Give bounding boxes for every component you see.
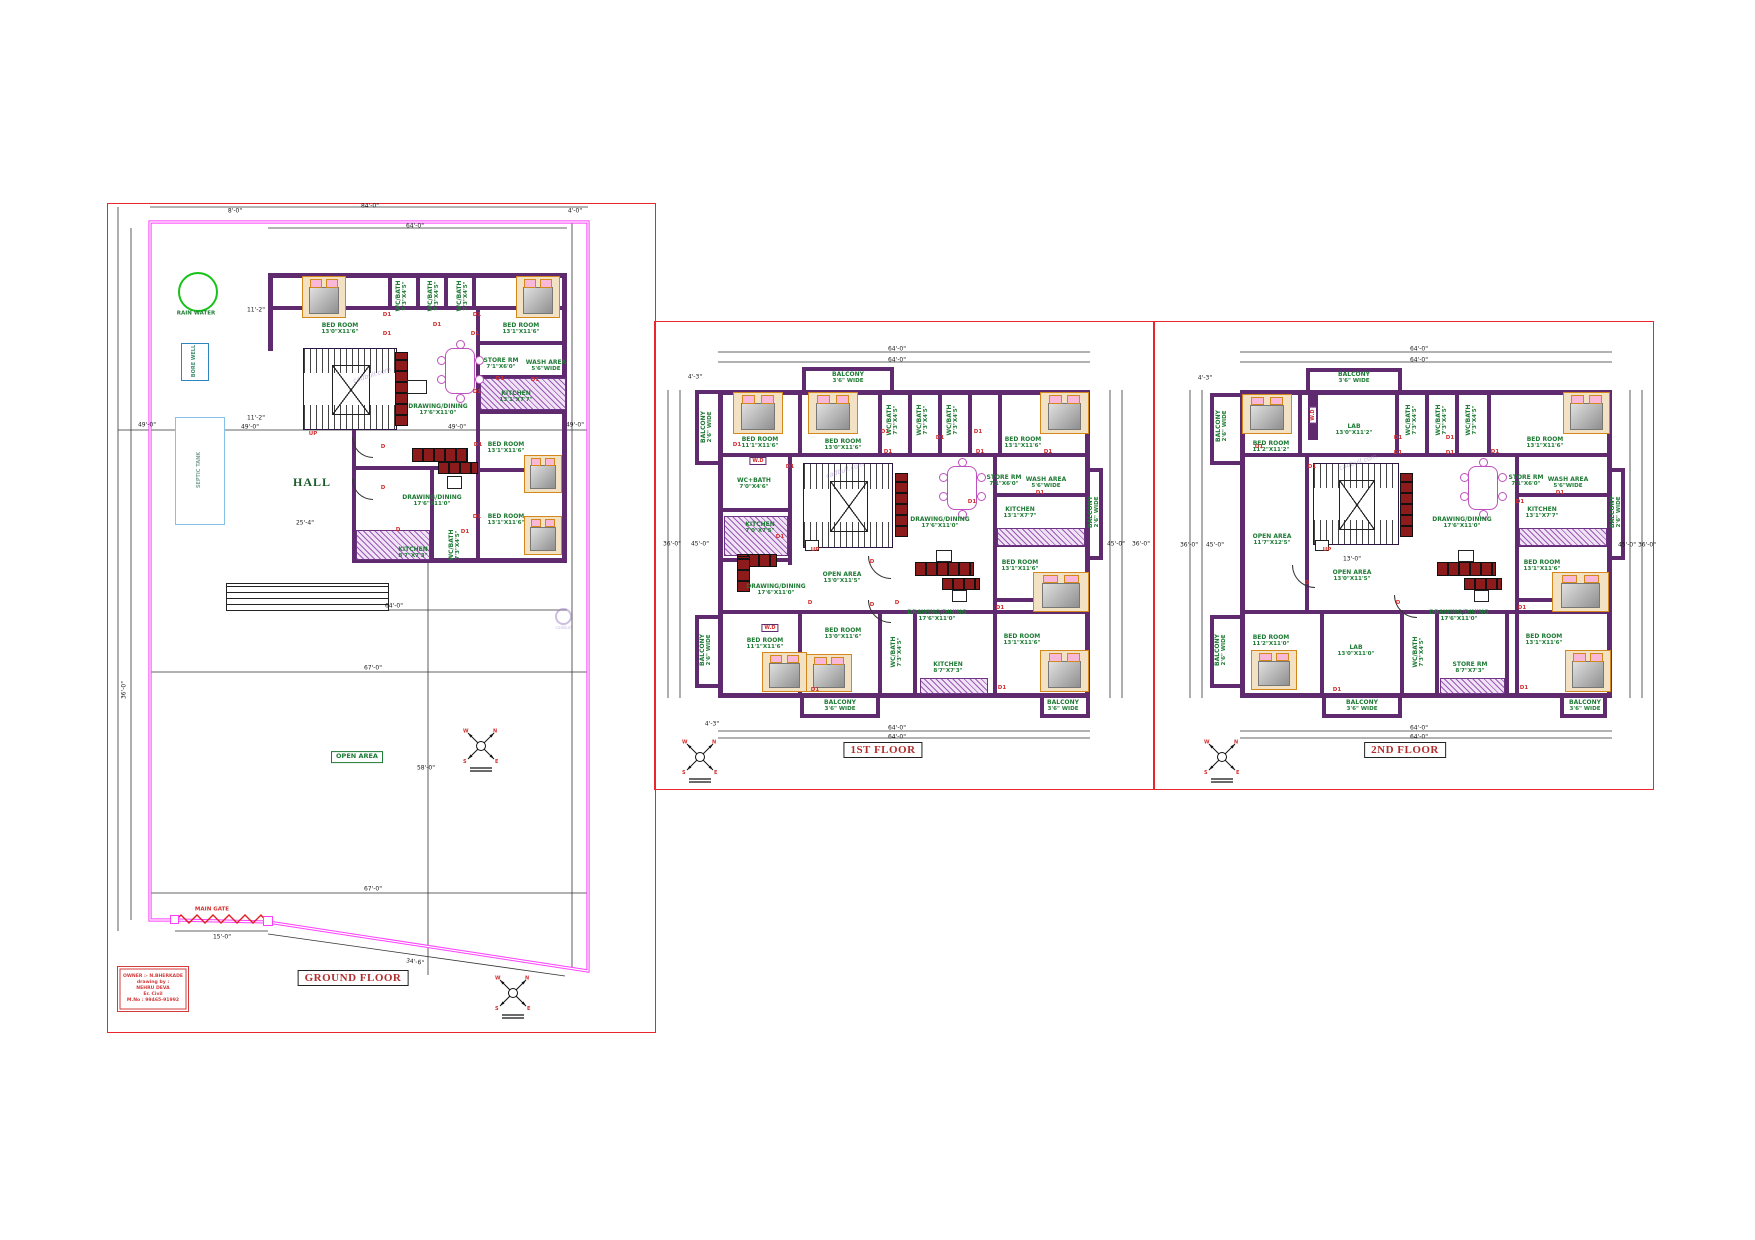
room-size: 11'7"X12'5" <box>1253 540 1292 547</box>
table-box <box>447 476 462 489</box>
bed-pillow <box>1590 653 1603 661</box>
dining-chair <box>1460 492 1469 501</box>
dimension-text: 36'-0" <box>1132 541 1150 548</box>
svg-text:W: W <box>495 976 501 982</box>
dimension-text: 25'-4" <box>296 520 314 527</box>
room-size: 3'6" WIDE <box>1569 706 1601 713</box>
wall-segment <box>695 390 718 394</box>
door-label: D1 <box>383 312 391 318</box>
room-label: WC/BATH7'3"X4'5" <box>946 404 960 435</box>
bed-furniture <box>516 276 560 318</box>
bed-pillow <box>814 657 827 665</box>
wall-segment <box>1085 556 1103 560</box>
wall-segment <box>1305 453 1309 612</box>
wall-segment <box>876 698 880 718</box>
bed-furniture <box>524 516 562 555</box>
wall-segment <box>1210 461 1240 465</box>
room-size: 7'3"X4'5" <box>923 404 930 435</box>
room-label: DRAWING/DINING17'6"X11'0" <box>408 403 467 417</box>
bed-furniture <box>1040 650 1089 692</box>
room-size: 7'3"X4'5" <box>463 280 470 311</box>
room-label: BALCONY2'6" WIDE <box>699 634 713 666</box>
bed-pillow <box>310 279 322 287</box>
wall-segment <box>1435 610 1439 698</box>
wall-segment <box>1505 610 1509 698</box>
room-size: 8'7"X7'3" <box>398 553 428 560</box>
dimension-text: 45'-0" <box>1206 542 1224 549</box>
door-label: D1 <box>1308 464 1316 470</box>
wall-segment <box>1322 714 1402 718</box>
wall-segment <box>1607 556 1625 560</box>
room-size: 13'1"X11'6" <box>1005 443 1042 450</box>
room-size: 17'6"X11'0" <box>907 616 966 623</box>
dimension-text: 36'-0" <box>121 681 128 699</box>
wall-segment <box>430 466 434 562</box>
wall-segment <box>1425 390 1429 457</box>
door-label: D <box>808 600 813 606</box>
dimension-text: 64'-0" <box>1410 734 1428 741</box>
dimension-text: 4'-3" <box>688 374 702 381</box>
dimension-text: 36'-0" <box>1180 542 1198 549</box>
room-label: STORE RM8'7"X7'3" <box>1453 661 1488 675</box>
bed-pillow <box>742 395 756 403</box>
door-label: D1 <box>998 685 1006 691</box>
room-size: 2'6" WIDE <box>1221 634 1228 666</box>
room-size: 7'3"X4'5" <box>893 404 900 435</box>
stairs-block <box>803 463 893 548</box>
door-label: D <box>870 602 875 608</box>
room-size: 13'0"X11'6" <box>825 445 862 452</box>
utility-label: BORE WELL <box>191 345 197 377</box>
north-compass-icon: N E S W <box>682 739 718 789</box>
room-label: BED ROOM13'1"X11'6" <box>1002 559 1039 573</box>
wall-segment <box>1086 698 1090 718</box>
room-label: WC/BATH7'3"X4'5" <box>916 404 930 435</box>
room-label: WASH AREA5'6"WIDE <box>526 359 566 373</box>
wall-segment <box>1210 393 1214 465</box>
room-label: OPEN AREA11'7"X12'5" <box>1253 533 1292 547</box>
dining-chair <box>939 492 948 501</box>
room-label: WC+BATH7'0"X4'6" <box>737 477 771 491</box>
stair-landing-cross <box>830 481 867 533</box>
bed-pillow <box>545 458 556 466</box>
door-label: D1 <box>811 687 819 693</box>
room-label: LAB13'0"X11'0" <box>1338 644 1375 658</box>
room-label: KITCHEN13'1"X7'7" <box>1003 506 1036 520</box>
room-size: 13'1"X11'6" <box>503 329 540 336</box>
bed-pillow <box>836 395 850 403</box>
north-compass-icon: N E S W <box>495 975 531 1021</box>
room-size: 2'6" WIDE <box>1222 410 1229 442</box>
north-compass-icon: N E S W <box>1204 739 1240 789</box>
wall-segment <box>1398 698 1402 718</box>
room-label: BED ROOM13'0"X11'6" <box>825 438 862 452</box>
bed-mattress <box>309 287 339 313</box>
bed-furniture <box>1040 392 1089 434</box>
bed-pillow <box>1251 397 1265 405</box>
wall-segment <box>718 508 792 512</box>
door-label: D1 <box>968 499 976 505</box>
wall-segment <box>1455 390 1459 457</box>
room-label: KITCHEN7'0"X7'5" <box>745 521 775 535</box>
dimension-text: 64'-0" <box>1410 346 1428 353</box>
room-size: 13'0"X11'6" <box>825 634 862 641</box>
room-label: WC/BATH7'3"X4'5" <box>395 280 409 311</box>
room-label: BED ROOM13'1"X11'6" <box>503 322 540 336</box>
door-label: D <box>1305 580 1310 586</box>
bed-furniture <box>1552 572 1609 612</box>
room-size: 13'0"X11'6" <box>322 329 359 336</box>
bed-pillow <box>1067 653 1080 661</box>
room-label: BALCONY2'6" WIDE <box>700 411 714 443</box>
room-label: BALCONY2'6" WIDE <box>1087 496 1101 528</box>
room-size: 2'6" WIDE <box>1094 496 1101 528</box>
room-size: 13'0"X11'5" <box>823 578 862 585</box>
panel-frame <box>107 203 656 1033</box>
room-label: BALCONY2'6" WIDE <box>1609 496 1623 528</box>
door-label: UP <box>1323 547 1332 553</box>
bed-furniture <box>524 455 562 493</box>
door-label: D1 <box>474 442 482 448</box>
wall-segment <box>1395 390 1399 457</box>
room-size: 13'1"X11'6" <box>1002 566 1039 573</box>
door-label: D1 <box>1394 435 1402 441</box>
bed-furniture <box>1033 572 1089 612</box>
door-label: D <box>895 600 900 606</box>
bed-mattress <box>741 403 776 429</box>
wall-segment <box>890 367 894 390</box>
wall-segment <box>1560 714 1607 718</box>
room-size: 7'3"X4'5" <box>1419 636 1426 667</box>
room-label: WC/BATH7'3"X4'5" <box>1405 404 1419 435</box>
room-label: BALCONY3'6" WIDE <box>1338 371 1370 385</box>
wall-segment <box>1040 714 1090 718</box>
dimension-text: 64'-0" <box>888 734 906 741</box>
svg-text:N: N <box>493 729 497 735</box>
wall-segment <box>968 390 972 457</box>
room-label: OPEN AREA13'0"X11'5" <box>823 571 862 585</box>
door-label: D <box>381 485 386 491</box>
bed-furniture <box>1251 650 1297 690</box>
door-label: D1 <box>881 429 889 435</box>
room-label: W.D <box>749 457 766 465</box>
room-label: BALCONY2'6" WIDE <box>1214 634 1228 666</box>
bed-pillow <box>1276 653 1289 661</box>
dimension-text: 84'-0" <box>361 203 379 210</box>
bed-mattress <box>1570 403 1602 429</box>
room-label: WC/BATH7'3"X4'5" <box>427 280 441 311</box>
room-size: 7'3"X4'5" <box>1442 404 1449 435</box>
bed-mattress <box>1572 661 1604 687</box>
room-size: 13'0"X11'2" <box>1336 430 1373 437</box>
stairs-block <box>1313 463 1399 545</box>
room-size: 5'6"WIDE <box>1026 483 1066 490</box>
room-label: W.D <box>1309 406 1317 423</box>
wall-segment <box>993 453 997 698</box>
room-size: 17'6"X11'0" <box>910 523 969 530</box>
bed-furniture <box>302 276 346 318</box>
room-size: 13'1"X11'6" <box>1527 443 1564 450</box>
room-label: WC/BATH7'3"X4'5" <box>1465 404 1479 435</box>
room-label: STORE RM7'1"X6'0" <box>484 357 519 371</box>
room-size: 3'6" WIDE <box>832 378 864 385</box>
door-label: D1 <box>1556 490 1564 496</box>
svg-text:E: E <box>714 770 718 776</box>
stairs-block <box>303 348 397 430</box>
room-label: WC/BATH7'3"X4'5" <box>1412 636 1426 667</box>
wall-segment <box>1240 390 1245 693</box>
wall-segment <box>1210 615 1240 619</box>
wall-segment <box>908 390 912 457</box>
svg-text:E: E <box>527 1006 531 1012</box>
wall-segment <box>800 714 880 718</box>
wall-segment <box>1210 684 1240 688</box>
bed-pillow <box>1571 395 1584 403</box>
door-label: D1 <box>473 312 481 318</box>
room-label: BED ROOM11'1"X11'6" <box>742 436 779 450</box>
sofa-furniture <box>438 462 478 474</box>
room-size: 7'3"X4'5" <box>953 404 960 435</box>
room-label: DRAWING/DINING17'6"X11'0" <box>402 494 461 508</box>
wall-segment <box>1320 610 1324 698</box>
utility-label: SEPTIC TANK <box>196 452 202 488</box>
wall-segment <box>878 610 882 698</box>
bed-pillow <box>1049 653 1062 661</box>
room-label: BALCONY3'6" WIDE <box>1047 699 1079 713</box>
room-label: DRAWING/DINING17'6"X11'0" <box>907 609 966 623</box>
wall-segment <box>695 615 718 619</box>
bed-mattress <box>530 527 556 551</box>
door-label: D1 <box>1446 450 1454 456</box>
kitchen-counter-hatch <box>920 678 988 694</box>
room-size: 11'1"X11'6" <box>742 443 779 450</box>
dining-chair <box>437 356 446 365</box>
door-label: D1 <box>936 435 944 441</box>
door-label: D1 <box>496 376 504 382</box>
room-size: 13'1"X11'6" <box>1526 640 1563 647</box>
bed-furniture <box>733 392 783 434</box>
table-box <box>936 550 952 562</box>
bed-pillow <box>831 657 844 665</box>
door-label: D1 <box>531 377 539 383</box>
bed-pillow <box>524 279 536 287</box>
svg-text:W: W <box>463 729 469 735</box>
room-label: BED ROOM11'2"X11'0" <box>1253 634 1290 648</box>
bed-pillow <box>761 395 775 403</box>
dimension-text: 4'-0" <box>568 208 582 215</box>
room-label: DRAWING/DINING17'6"X11'0" <box>1432 516 1491 530</box>
dining-chair <box>958 458 967 467</box>
door-label: D1 <box>733 442 741 448</box>
door-label: D1 <box>461 529 469 535</box>
dimension-text: 4'-3" <box>1198 375 1212 382</box>
room-size: 11'1"X11'6" <box>747 644 784 651</box>
wall-segment <box>695 684 718 688</box>
dining-table <box>1468 466 1498 510</box>
room-size: 7'1"X6'0" <box>484 364 519 371</box>
kitchen-counter-hatch <box>997 528 1085 546</box>
dimension-text: 4'-3" <box>705 721 719 728</box>
room-size: 7'0"X7'5" <box>745 528 775 535</box>
bed-pillow <box>1584 575 1599 583</box>
kitchen-counter-hatch <box>1440 678 1505 694</box>
dimension-text: 45'-0" <box>1618 542 1636 549</box>
wall-segment <box>1298 390 1302 457</box>
room-label: KITCHEN8'7"X7'3" <box>933 661 963 675</box>
room-size: 17'6"X11'0" <box>1429 616 1488 623</box>
room-size: 11'2"X11'0" <box>1253 641 1290 648</box>
wall-segment <box>913 610 917 698</box>
room-label: KITCHEN13'1"X7'7" <box>499 390 532 404</box>
table-box <box>952 590 967 602</box>
room-size: 7'3"X4'5" <box>434 280 441 311</box>
room-label: BED ROOM13'0"X11'6" <box>825 627 862 641</box>
bed-pillow <box>531 519 542 527</box>
room-label: WASH AREA5'6"WIDE <box>1548 476 1588 490</box>
svg-text:W: W <box>1204 740 1210 746</box>
door-label: D1 <box>974 429 982 435</box>
door-label: D1 <box>786 464 794 470</box>
dimension-text: 15'-0" <box>213 934 231 941</box>
room-label: BED ROOM13'0"X11'6" <box>322 322 359 336</box>
bed-pillow <box>1067 395 1080 403</box>
room-label: STORE RM7'1"X6'0" <box>987 474 1022 488</box>
room-size: 8'7"X7'3" <box>933 668 963 675</box>
svg-text:S: S <box>463 759 467 765</box>
rain-water-label: RAIN WATER <box>177 311 215 318</box>
bed-pillow <box>326 279 338 287</box>
door-label: D1 <box>1516 499 1524 505</box>
door-label: D <box>396 527 401 533</box>
sofa-furniture <box>1464 578 1502 590</box>
room-label: BED ROOM13'1"X11'6" <box>488 441 525 455</box>
bed-mattress <box>1048 403 1082 429</box>
door-label: D <box>381 444 386 450</box>
room-size: 7'1"X6'0" <box>1509 481 1544 488</box>
sofa-furniture <box>942 578 980 590</box>
room-size: 13'1"X7'7" <box>499 397 532 404</box>
bed-mattress <box>1048 661 1082 687</box>
wall-segment <box>1240 693 1612 698</box>
room-label: LAB13'0"X11'2" <box>1336 423 1373 437</box>
bed-mattress <box>769 663 800 688</box>
svg-text:E: E <box>1236 770 1240 776</box>
bed-furniture <box>1242 394 1292 434</box>
wall-segment <box>1210 393 1240 397</box>
room-size: 17'6"X11'0" <box>408 410 467 417</box>
dining-chair <box>456 340 465 349</box>
room-label: BALCONY2'6" WIDE <box>1215 410 1229 442</box>
bed-pillow <box>770 655 782 663</box>
door-label: D1 <box>1333 687 1341 693</box>
north-compass-icon: N E S W <box>463 728 499 774</box>
dimension-text: 13'-0" <box>1343 556 1361 563</box>
room-size: 3'6" WIDE <box>824 706 856 713</box>
room-size: 5'6"WIDE <box>1548 483 1588 490</box>
door-label: D1 <box>1255 444 1263 450</box>
wall-segment <box>718 693 1090 698</box>
room-size: 7'3"X4'5" <box>1412 404 1419 435</box>
table-box <box>1458 550 1474 562</box>
room-size: 13'1"X11'6" <box>1004 640 1041 647</box>
wall-segment <box>388 273 392 310</box>
wall-segment <box>695 390 699 465</box>
room-size: 2'6" WIDE <box>1616 496 1623 528</box>
wall-segment <box>798 390 802 457</box>
room-size: 7'3"X4'5" <box>402 280 409 311</box>
wall-segment <box>878 390 882 457</box>
dining-chair <box>437 375 446 384</box>
door-label: D1 <box>473 514 481 520</box>
room-label: BED ROOM13'1"X11'6" <box>1004 633 1041 647</box>
bed-pillow <box>1562 575 1577 583</box>
dining-chair <box>1460 473 1469 482</box>
bed-furniture <box>1563 392 1610 434</box>
room-label: OPEN AREA <box>331 751 383 763</box>
wall-segment <box>1398 368 1402 390</box>
dimension-text: 64'-0" <box>406 223 424 230</box>
bed-pillow <box>1573 653 1586 661</box>
wall-segment <box>998 390 1002 457</box>
room-size: 3'6" WIDE <box>1338 378 1370 385</box>
bed-mattress <box>523 287 553 313</box>
svg-text:S: S <box>495 1006 499 1012</box>
room-label: BALCONY3'6" WIDE <box>1346 699 1378 713</box>
dimension-text: 64'-0" <box>1410 357 1428 364</box>
bed-mattress <box>1250 405 1285 430</box>
sofa-furniture <box>1437 562 1496 576</box>
wall-segment <box>695 461 718 465</box>
sofa-furniture <box>412 448 468 462</box>
bed-pillow <box>817 395 831 403</box>
room-label: KITCHEN8'7"X7'3" <box>398 546 428 560</box>
watermark-circle <box>555 608 572 625</box>
room-label: DRAWING/DINING17'6"X11'0" <box>1429 609 1488 623</box>
room-size: 13'1"X11'6" <box>488 520 525 527</box>
dining-chair <box>939 473 948 482</box>
room-size: 13'1"X7'7" <box>1003 513 1036 520</box>
room-size: 13'0"X11'5" <box>1333 576 1372 583</box>
room-label: BED ROOM13'1"X11'6" <box>488 513 525 527</box>
north-compass-icon: N E S W <box>682 739 718 785</box>
door-label: D1 <box>1518 605 1526 611</box>
door-label: UP <box>309 431 318 437</box>
floor-plan-canvas: GROUND FLOOR 1ST FLOOR 2ND FLOOR OWNER :… <box>0 0 1755 1240</box>
wall-segment <box>718 453 1090 457</box>
rain-water-circle <box>178 272 218 312</box>
dimension-text: 11'-2" <box>247 307 265 314</box>
wall-segment <box>476 410 566 414</box>
bed-pillow <box>1064 575 1079 583</box>
room-label: BALCONY3'6" WIDE <box>1569 699 1601 713</box>
door-label: D1 <box>383 331 391 337</box>
bed-pillow <box>531 458 542 466</box>
bed-mattress <box>813 664 845 688</box>
dimension-text: 49'-0" <box>566 422 584 429</box>
sofa-furniture <box>1400 473 1413 537</box>
north-compass-icon: N E S W <box>1204 739 1240 785</box>
door-label: UP <box>811 547 820 553</box>
wall-segment <box>476 341 566 345</box>
dining-chair <box>1479 458 1488 467</box>
room-label: BED ROOM13'1"X11'6" <box>1526 633 1563 647</box>
dimension-text: 45'-0" <box>691 541 709 548</box>
dimension-text: 45'-0" <box>1107 541 1125 548</box>
dimension-text: 64'-0" <box>888 346 906 353</box>
dimension-text: 8'-0" <box>228 208 242 215</box>
door-label: D1 <box>884 449 892 455</box>
wall-segment <box>1400 610 1404 698</box>
